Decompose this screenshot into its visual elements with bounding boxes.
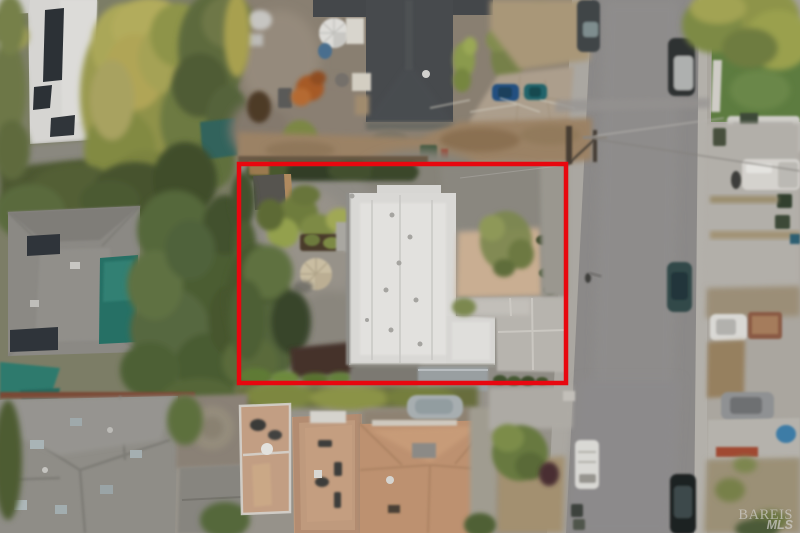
svg-text:MLS: MLS [767,518,794,532]
